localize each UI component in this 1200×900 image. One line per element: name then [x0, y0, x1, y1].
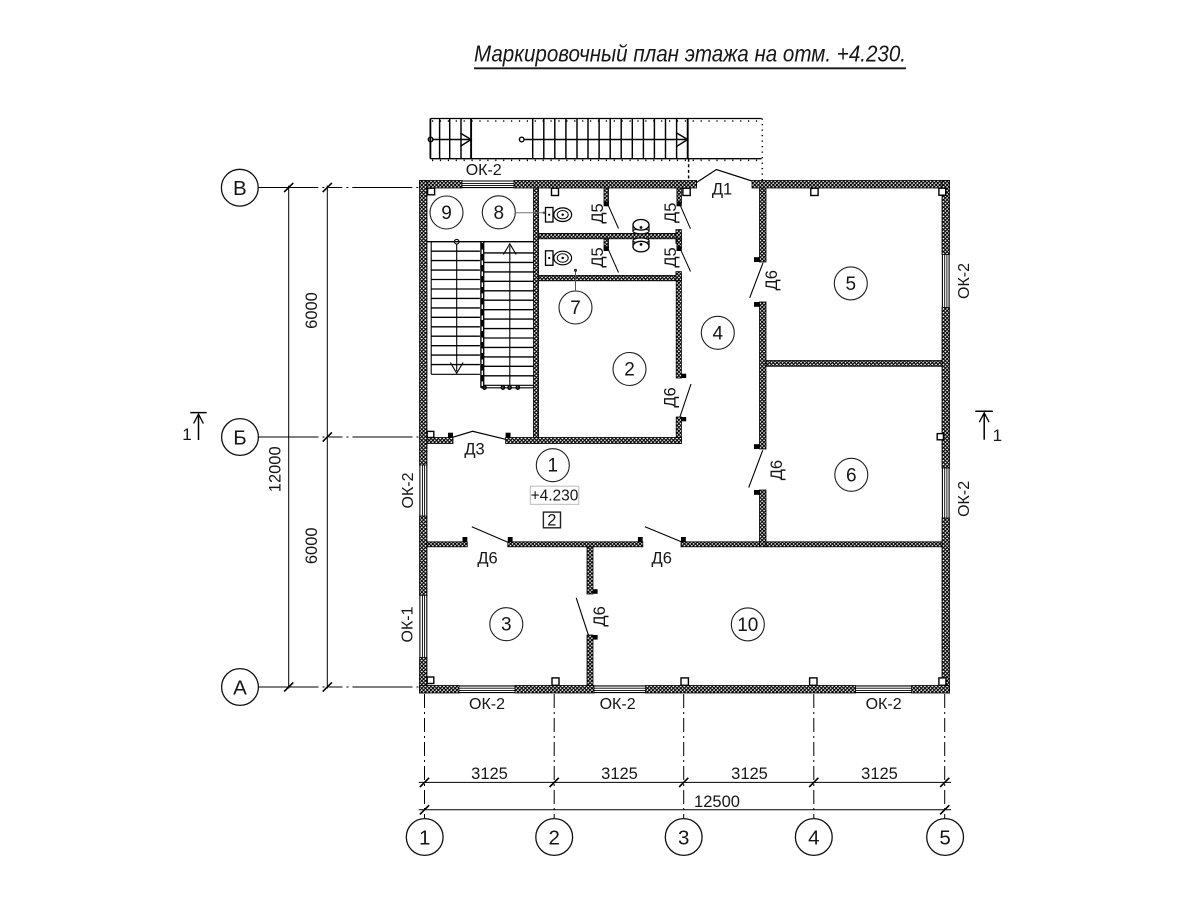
svg-text:А: А [233, 676, 247, 699]
svg-text:3125: 3125 [471, 765, 508, 783]
svg-text:ОК-2: ОК-2 [400, 472, 417, 508]
svg-text:3: 3 [501, 615, 512, 636]
svg-text:ОК-2: ОК-2 [469, 696, 505, 713]
svg-text:4: 4 [713, 323, 724, 344]
svg-text:Д6: Д6 [662, 387, 680, 407]
svg-text:ОК-2: ОК-2 [466, 162, 502, 179]
svg-text:ОК-2: ОК-2 [600, 696, 636, 713]
svg-text:Д5: Д5 [589, 203, 607, 223]
svg-text:ОК-2: ОК-2 [956, 263, 973, 299]
svg-text:7: 7 [570, 298, 581, 319]
svg-text:ОК-2: ОК-2 [956, 481, 973, 517]
svg-text:+4.230: +4.230 [531, 488, 579, 505]
svg-text:5: 5 [939, 826, 950, 849]
svg-text:2: 2 [624, 360, 635, 381]
svg-text:3125: 3125 [731, 765, 768, 783]
svg-text:2: 2 [548, 826, 559, 849]
svg-text:Д1: Д1 [712, 181, 732, 199]
svg-text:Д3: Д3 [464, 441, 484, 459]
svg-text:10: 10 [737, 615, 758, 636]
svg-text:6: 6 [846, 465, 857, 486]
svg-text:ОК-2: ОК-2 [866, 696, 902, 713]
svg-text:12500: 12500 [694, 793, 740, 811]
svg-text:6000: 6000 [303, 527, 321, 564]
svg-text:В: В [233, 177, 247, 200]
svg-text:Д5: Д5 [589, 247, 607, 267]
svg-text:4: 4 [808, 826, 819, 849]
svg-text:Д6: Д6 [763, 270, 781, 290]
svg-text:Маркировочный план этажа на от: Маркировочный план этажа на отм. +4.230. [474, 41, 906, 67]
svg-text:1: 1 [993, 426, 1002, 445]
svg-text:Д6: Д6 [768, 460, 786, 480]
svg-text:3: 3 [678, 826, 689, 849]
svg-text:ОК-1: ОК-1 [400, 606, 417, 642]
svg-text:5: 5 [846, 274, 857, 295]
svg-text:Д6: Д6 [591, 606, 609, 626]
svg-text:Д6: Д6 [477, 550, 497, 568]
svg-text:1: 1 [548, 456, 559, 477]
svg-text:2: 2 [547, 512, 556, 530]
svg-text:Д5: Д5 [662, 203, 680, 223]
svg-text:Д6: Д6 [652, 550, 672, 568]
svg-text:3125: 3125 [601, 765, 638, 783]
svg-text:8: 8 [494, 203, 505, 224]
svg-text:Д5: Д5 [662, 247, 680, 267]
svg-text:Б: Б [233, 426, 246, 449]
svg-text:6000: 6000 [303, 292, 321, 329]
svg-text:12000: 12000 [267, 446, 285, 492]
svg-text:1: 1 [419, 826, 430, 849]
svg-text:3125: 3125 [861, 765, 898, 783]
svg-text:1: 1 [182, 425, 191, 444]
svg-text:9: 9 [441, 203, 452, 224]
